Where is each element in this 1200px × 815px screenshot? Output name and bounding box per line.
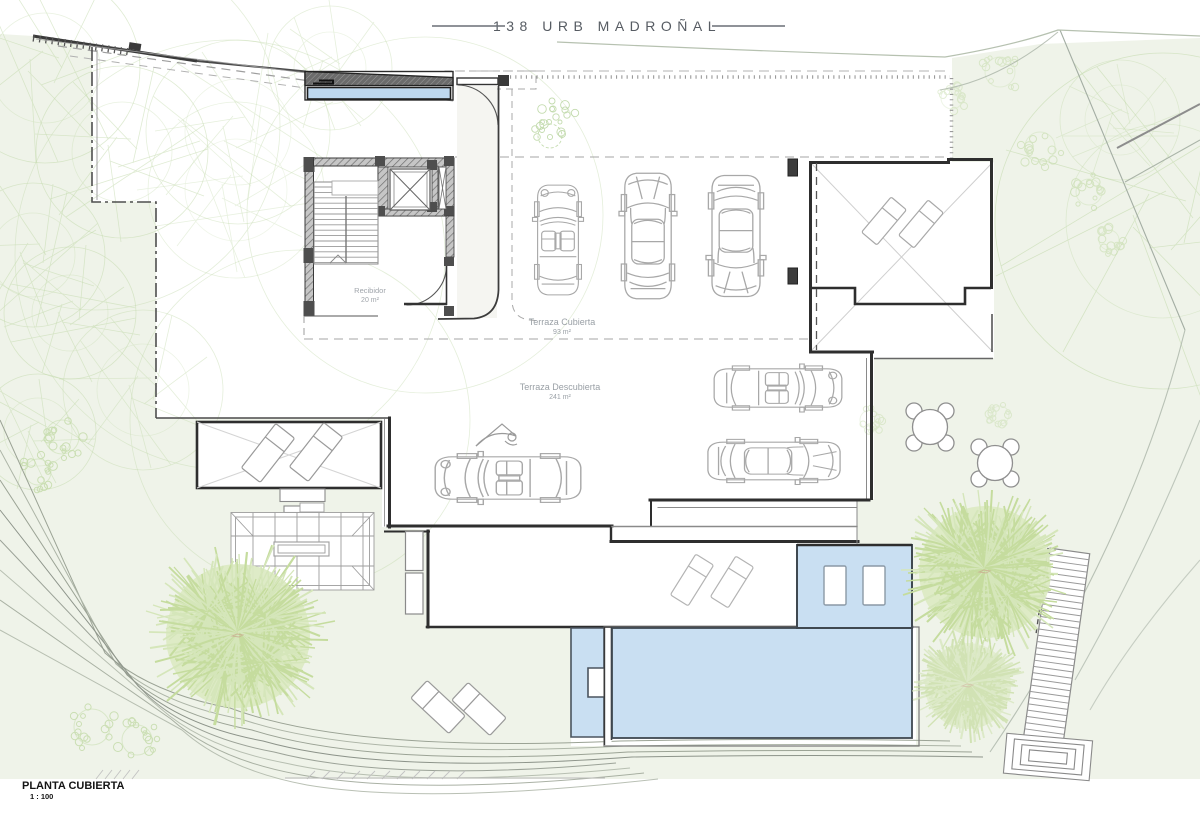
svg-text:20 m²: 20 m² bbox=[361, 297, 380, 304]
svg-text:241 m²: 241 m² bbox=[549, 394, 571, 401]
svg-text:93 m²: 93 m² bbox=[553, 329, 572, 336]
svg-text:Terraza Descubierta: Terraza Descubierta bbox=[520, 382, 601, 392]
svg-text:Recibidor: Recibidor bbox=[354, 286, 386, 295]
svg-text:1 : 100: 1 : 100 bbox=[30, 792, 53, 801]
svg-text:Terraza Cubierta: Terraza Cubierta bbox=[529, 317, 596, 327]
svg-text:PLANTA CUBIERTA: PLANTA CUBIERTA bbox=[22, 780, 125, 792]
svg-text:138 URB MADROÑAL: 138 URB MADROÑAL bbox=[493, 18, 721, 34]
